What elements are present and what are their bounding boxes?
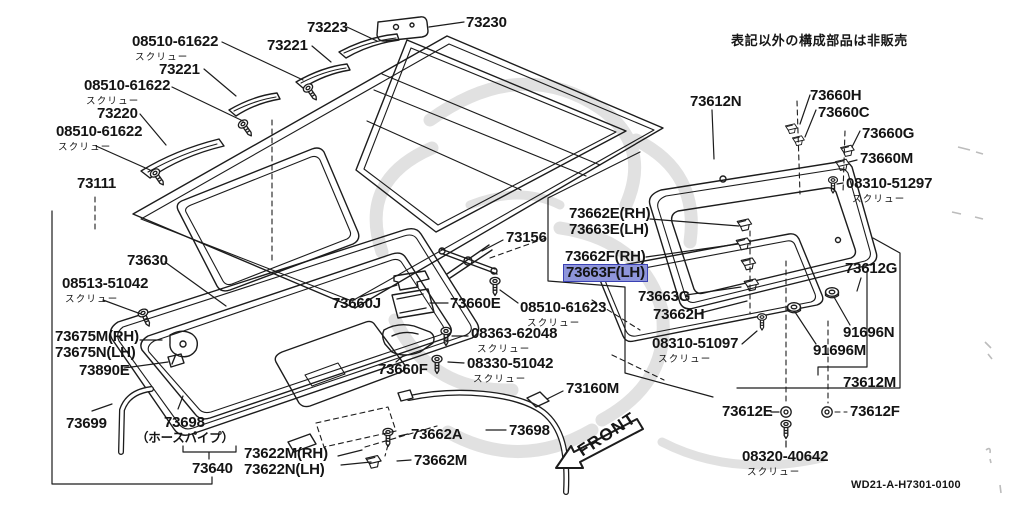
scan-artifacts — [952, 147, 1001, 493]
part-label-08320-40642[interactable]: 08320-40642スクリュー — [742, 449, 828, 481]
part-label-line: 73698 — [164, 415, 205, 431]
part-label-73640[interactable]: 73640 — [192, 461, 233, 477]
part-label-73612G[interactable]: 73612G — [845, 261, 897, 277]
part-label-line: 73660M — [860, 151, 913, 167]
part-label-line: 73662H — [653, 307, 704, 323]
part-label-line: 73230 — [466, 15, 507, 31]
part-label-line: 73612G — [845, 261, 897, 277]
part-label-line: 73660H — [810, 88, 861, 104]
part-label-08363-62048[interactable]: 08363-62048スクリュー — [471, 326, 557, 358]
part-label-73660M[interactable]: 73660M — [860, 151, 913, 167]
part-label-kana-sub: スクリュー — [58, 140, 142, 156]
part-label-line: 73662A — [411, 427, 462, 443]
part-label-line: 08510-61622 — [84, 78, 170, 94]
part-label-73220[interactable]: 73220 — [97, 106, 138, 122]
part-label-line: 73221 — [267, 38, 308, 54]
part-label-line: 73660J — [332, 296, 381, 312]
part-label-73662E-73663E[interactable]: 73662E(RH)73663E(LH) — [569, 206, 650, 238]
non-sale-note: 表記以外の構成部品は非販売 — [731, 30, 908, 49]
part-label-73663G[interactable]: 73663G — [638, 289, 690, 305]
part-label-kana-sub: スクリュー — [852, 192, 932, 208]
part-label-kana-sub: スクリュー — [473, 372, 553, 388]
part-label-73630[interactable]: 73630 — [127, 253, 168, 269]
part-label-73660F[interactable]: 73660F — [378, 362, 428, 378]
part-label-73699[interactable]: 73699 — [66, 416, 107, 432]
part-label-73662H[interactable]: 73662H — [653, 307, 704, 323]
part-label-08310-51097[interactable]: 08310-51097スクリュー — [652, 336, 738, 368]
part-label-line: 73612N — [690, 94, 741, 110]
part-label-line: 73660E — [450, 296, 501, 312]
part-label-hose-pipe-note[interactable]: （ホースパイプ） — [136, 430, 234, 446]
part-label-73662F-73663F[interactable]: 73662F(RH)73663F(LH) — [565, 249, 646, 281]
part-label-73662A[interactable]: 73662A — [411, 427, 462, 443]
part-label-73660C[interactable]: 73660C — [818, 105, 869, 121]
part-label-line: 73612F — [850, 404, 900, 420]
part-label-08310-51297[interactable]: 08310-51297スクリュー — [846, 176, 932, 208]
part-label-line: 73660C — [818, 105, 869, 121]
part-label-73221-1[interactable]: 73221 — [159, 62, 200, 78]
part-label-line: 08310-51297 — [846, 176, 932, 192]
part-label-73230[interactable]: 73230 — [466, 15, 507, 31]
part-label-73622M-73622N[interactable]: 73622M(RH)73622N(LH) — [244, 446, 328, 478]
part-label-73698-2[interactable]: 73698 — [509, 423, 550, 439]
part-label-91696M[interactable]: 91696M — [813, 343, 866, 359]
part-label-73612E[interactable]: 73612E — [722, 404, 773, 420]
part-label-73156[interactable]: 73156 — [506, 230, 547, 246]
part-label-08330-51042[interactable]: 08330-51042スクリュー — [467, 356, 553, 388]
part-label-line: 73223 — [307, 20, 348, 36]
part-label-line: 73612E — [722, 404, 773, 420]
part-label-line: 73675M(RH) — [55, 329, 139, 345]
part-label-line: （ホースパイプ） — [136, 430, 234, 446]
part-label-line: 08510-61622 — [132, 34, 218, 50]
part-label-08510-61622-3[interactable]: 08510-61622スクリュー — [56, 124, 142, 156]
part-label-line: 73220 — [97, 106, 138, 122]
part-label-73660H[interactable]: 73660H — [810, 88, 861, 104]
part-label-line: 91696M — [813, 343, 866, 359]
parts-diagram-canvas: 08510-61622スクリュー7322108510-61622スクリュー732… — [0, 0, 1024, 505]
part-label-line: 08363-62048 — [471, 326, 557, 342]
part-label-73660G[interactable]: 73660G — [862, 126, 914, 142]
part-label-73612F[interactable]: 73612F — [850, 404, 900, 420]
part-label-line: 08510-61622 — [56, 124, 142, 140]
part-label-highlighted-line: 73663F(LH) — [563, 264, 648, 282]
part-label-line: 08310-51097 — [652, 336, 738, 352]
part-label-73698-hose[interactable]: 73698 — [164, 415, 205, 431]
part-label-line: 73640 — [192, 461, 233, 477]
part-label-91696N[interactable]: 91696N — [843, 325, 894, 341]
part-label-line: 73890E — [79, 363, 130, 379]
part-label-kana-sub: スクリュー — [747, 465, 828, 481]
drawing-code: WD21-A-H7301-0100 — [851, 479, 961, 491]
part-label-line: 73612M — [843, 375, 896, 391]
part-label-73221-2[interactable]: 73221 — [267, 38, 308, 54]
part-label-line: 73675N(LH) — [55, 345, 139, 361]
part-label-line: 08510-61623 — [520, 300, 606, 316]
part-label-73612M[interactable]: 73612M — [843, 375, 896, 391]
part-label-line: 73221 — [159, 62, 200, 78]
part-label-line: 08513-51042 — [62, 276, 148, 292]
part-label-73612N[interactable]: 73612N — [690, 94, 741, 110]
part-label-line: 73662M — [414, 453, 467, 469]
part-label-line: 73156 — [506, 230, 547, 246]
part-label-line: 73660G — [862, 126, 914, 142]
part-label-73660J[interactable]: 73660J — [332, 296, 381, 312]
part-label-line: 73111 — [77, 176, 116, 192]
part-label-line: 73662E(RH) — [569, 206, 650, 222]
part-label-73675M-73675N[interactable]: 73675M(RH)73675N(LH) — [55, 329, 139, 361]
part-label-line: 73630 — [127, 253, 168, 269]
part-label-line: 73663G — [638, 289, 690, 305]
part-label-line: 73160M — [566, 381, 619, 397]
part-label-73223[interactable]: 73223 — [307, 20, 348, 36]
part-label-kana-sub: スクリュー — [658, 352, 738, 368]
part-label-line: 91696N — [843, 325, 894, 341]
part-label-73160M[interactable]: 73160M — [566, 381, 619, 397]
part-label-line: 73698 — [509, 423, 550, 439]
part-label-line: 73622M(RH) — [244, 446, 328, 462]
part-label-line: 73622N(LH) — [244, 462, 328, 478]
part-label-line: 73662F(RH) — [565, 249, 646, 265]
part-label-73111[interactable]: 73111 — [77, 176, 116, 192]
part-label-line: 73660F — [378, 362, 428, 378]
part-label-73660E[interactable]: 73660E — [450, 296, 501, 312]
part-label-73662M[interactable]: 73662M — [414, 453, 467, 469]
part-label-line: 08320-40642 — [742, 449, 828, 465]
part-label-line: 08330-51042 — [467, 356, 553, 372]
part-label-73890E[interactable]: 73890E — [79, 363, 130, 379]
part-label-line: 73663E(LH) — [569, 222, 650, 238]
part-label-08513-51042[interactable]: 08513-51042スクリュー — [62, 276, 148, 308]
part-label-kana-sub: スクリュー — [65, 292, 148, 308]
part-label-line: 73699 — [66, 416, 107, 432]
